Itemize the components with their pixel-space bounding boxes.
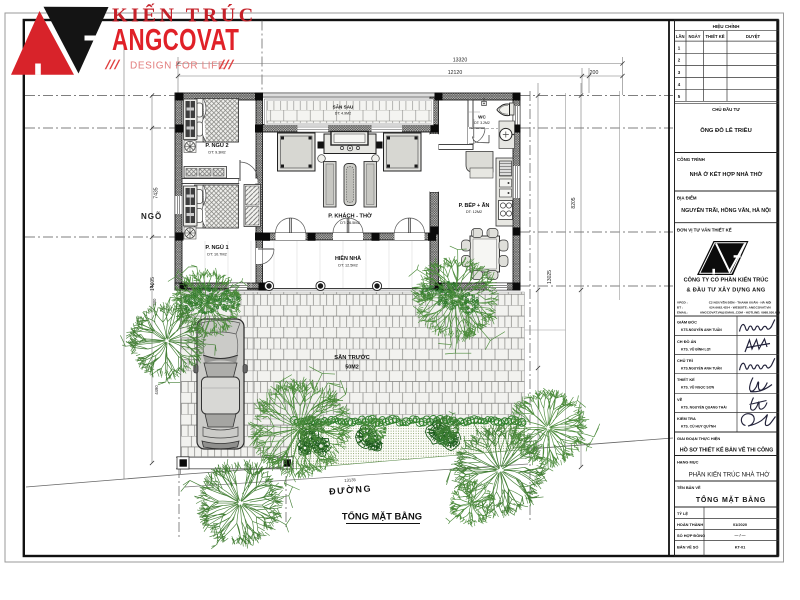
svg-text:3: 3 xyxy=(678,70,681,75)
svg-text:CH ĐỒ ÁN: CH ĐỒ ÁN xyxy=(677,339,696,344)
svg-text:HẠNG MỤC: HẠNG MỤC xyxy=(677,460,699,465)
svg-text:13320: 13320 xyxy=(453,58,468,64)
svg-text:DT: 26.5M2: DT: 26.5M2 xyxy=(340,221,359,225)
svg-text:HỒ SƠ THIẾT KẾ BẢN VẼ THI CÔNG: HỒ SƠ THIẾT KẾ BẢN VẼ THI CÔNG xyxy=(680,446,774,454)
svg-text:KTS. NGUYỄN QUANG THÁI: KTS. NGUYỄN QUANG THÁI xyxy=(681,404,727,409)
svg-text:DT: 12.5M2: DT: 12.5M2 xyxy=(338,264,357,268)
svg-text:NHÀ Ở KẾT HỢP NHÀ THỜ: NHÀ Ở KẾT HỢP NHÀ THỜ xyxy=(690,170,763,178)
svg-text:WC: WC xyxy=(478,115,486,120)
svg-text:2: 2 xyxy=(678,58,681,63)
svg-text:P. NGỦ 2: P. NGỦ 2 xyxy=(205,142,228,149)
svg-text:GIÁM ĐỐC: GIÁM ĐỐC xyxy=(677,319,697,324)
svg-text:ÔNG ĐỖ LÊ TRIỀU: ÔNG ĐỖ LÊ TRIỀU xyxy=(700,126,752,134)
svg-text:THIẾT KẾ: THIẾT KẾ xyxy=(677,377,695,382)
svg-text:KT-01: KT-01 xyxy=(735,545,746,550)
svg-text:C2 NGUYỄN ĐỒN - THANH XUÂN - H: C2 NGUYỄN ĐỒN - THANH XUÂN - HÀ NỘI xyxy=(709,300,772,305)
svg-text:KTS. VŨ ĐÌNH LỢI: KTS. VŨ ĐÌNH LỢI xyxy=(681,347,711,352)
svg-text:TỶ LỆ: TỶ LỆ xyxy=(677,511,688,516)
svg-text:KTS. CÙ HUY QUỲNH: KTS. CÙ HUY QUỲNH xyxy=(681,423,716,428)
svg-text:SÂN SAU: SÂN SAU xyxy=(333,104,354,110)
svg-text:4490: 4490 xyxy=(154,385,159,395)
svg-text:DESIGN FOR LIFE: DESIGN FOR LIFE xyxy=(130,61,225,72)
svg-text:NGÕ: NGÕ xyxy=(141,212,162,221)
svg-text:ĐT :: ĐT : xyxy=(677,306,683,310)
svg-text:NGUYỄN TRÃI, HỒNG VÂN, HÀ NỘI: NGUYỄN TRÃI, HỒNG VÂN, HÀ NỘI xyxy=(681,206,771,214)
svg-text:SÂN TRƯỚC: SÂN TRƯỚC xyxy=(334,353,370,361)
svg-text:GIAI ĐOẠN THỰC HIỆN: GIAI ĐOẠN THỰC HIỆN xyxy=(677,436,720,441)
svg-text:TỔNG MẶT BẰNG: TỔNG MẶT BẰNG xyxy=(696,495,766,504)
svg-text:200: 200 xyxy=(590,70,599,76)
svg-text:— / —: — / — xyxy=(734,533,745,538)
svg-text:ĐƠN VỊ TƯ VẤN THIẾT KẾ: ĐƠN VỊ TƯ VẤN THIẾT KẾ xyxy=(677,228,732,233)
svg-text:PHẦN KIẾN TRÚC NHÀ THỜ: PHẦN KIẾN TRÚC NHÀ THỜ xyxy=(689,472,771,479)
svg-text:TỔNG MẶT BẰNG: TỔNG MẶT BẰNG xyxy=(342,511,422,522)
svg-text:024.6662.4254 - WEBSITE: ANGCO: 024.6662.4254 - WEBSITE: ANGCOVAT.VN xyxy=(709,306,771,310)
svg-text:DT: 10.7M2: DT: 10.7M2 xyxy=(207,253,226,257)
svg-text:7435: 7435 xyxy=(154,187,160,198)
svg-text:ĐƯỜNG: ĐƯỜNG xyxy=(329,482,373,496)
svg-text:ANGCOVAT: ANGCOVAT xyxy=(112,22,239,56)
svg-text:CÔNG TY CỔ PHẦN KIẾN TRÚC: CÔNG TY CỔ PHẦN KIẾN TRÚC xyxy=(684,276,769,284)
svg-text:DT: 9.3M2: DT: 9.3M2 xyxy=(208,151,225,155)
svg-text:P. BẾP + ĂN: P. BẾP + ĂN xyxy=(459,202,490,209)
svg-text:KTS. VŨ NGỌC SƠN: KTS. VŨ NGỌC SƠN xyxy=(681,385,715,390)
svg-text:P. NGỦ 1: P. NGỦ 1 xyxy=(205,244,228,251)
svg-text:8205: 8205 xyxy=(571,197,577,208)
svg-text:EMAIL:: EMAIL: xyxy=(677,311,688,315)
svg-text:& ĐẦU TƯ XÂY DỰNG ANG: & ĐẦU TƯ XÂY DỰNG ANG xyxy=(687,287,766,294)
svg-text:ĐỊA ĐIỂM: ĐỊA ĐIỂM xyxy=(677,196,697,201)
svg-text:13025: 13025 xyxy=(547,270,553,284)
svg-text:13135: 13135 xyxy=(344,477,357,483)
svg-text:VẼ: VẼ xyxy=(677,397,683,402)
svg-text:5: 5 xyxy=(678,94,681,99)
svg-text:4: 4 xyxy=(678,82,681,87)
svg-text:HIỆU CHỈNH: HIỆU CHỈNH xyxy=(713,22,740,29)
svg-text:NGÀY: NGÀY xyxy=(688,34,700,39)
svg-text:LẦN: LẦN xyxy=(676,34,685,39)
svg-text:800: 800 xyxy=(152,298,157,306)
svg-text:SỐ HỢP ĐỒNG: SỐ HỢP ĐỒNG xyxy=(677,533,705,538)
svg-text:P. KHÁCH - THỜ: P. KHÁCH - THỜ xyxy=(328,212,372,220)
svg-text:BẢN VẼ SỐ: BẢN VẼ SỐ xyxy=(677,545,698,550)
svg-text:KIỂM TRA: KIỂM TRA xyxy=(677,416,696,421)
svg-text:CHỦ ĐẦU TƯ: CHỦ ĐẦU TƯ xyxy=(712,107,740,112)
svg-text:KTS.NGUYỄN ANH TUẤN: KTS.NGUYỄN ANH TUẤN xyxy=(681,366,722,371)
svg-text:12120: 12120 xyxy=(448,70,463,76)
svg-text:HIÊN NHÀ: HIÊN NHÀ xyxy=(335,254,361,262)
svg-text:DT: 4.9M2: DT: 4.9M2 xyxy=(335,112,351,116)
svg-text:///: /// xyxy=(104,57,123,72)
svg-text:DT: 3.2M2: DT: 3.2M2 xyxy=(474,121,490,125)
svg-text:///: /// xyxy=(218,57,237,72)
svg-text:ANGCOVAT.VN@GMAIL.COM - HOTLIN: ANGCOVAT.VN@GMAIL.COM - HOTLINE: 0988.03… xyxy=(700,311,781,315)
svg-text:14605: 14605 xyxy=(150,277,156,291)
svg-text:VPGD :: VPGD : xyxy=(677,301,688,305)
svg-text:DUYỆT: DUYỆT xyxy=(746,34,761,39)
svg-text:DT: 12M2: DT: 12M2 xyxy=(466,210,482,214)
svg-text:01/2020: 01/2020 xyxy=(733,522,747,527)
svg-text:50M2: 50M2 xyxy=(345,365,359,371)
svg-text:CÔNG TRÌNH: CÔNG TRÌNH xyxy=(677,157,705,162)
svg-text:KTS.NGUYỄN ANH TUẤN: KTS.NGUYỄN ANH TUẤN xyxy=(681,327,722,332)
svg-text:CHỦ TRÌ: CHỦ TRÌ xyxy=(677,358,693,363)
svg-text:HOÀN THÀNH: HOÀN THÀNH xyxy=(677,522,703,527)
svg-text:1: 1 xyxy=(678,46,681,51)
svg-text:THIẾT KẾ: THIẾT KẾ xyxy=(705,34,724,39)
svg-text:TÊN BẢN VẼ: TÊN BẢN VẼ xyxy=(677,485,701,490)
